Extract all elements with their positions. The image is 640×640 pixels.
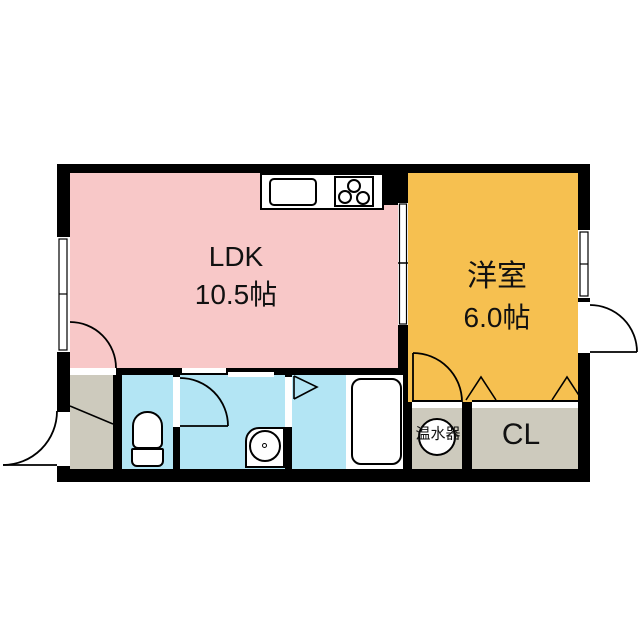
window-right [578, 230, 590, 298]
stove-burner-icon [338, 190, 352, 204]
entrance-doorway [57, 412, 70, 466]
closet-doorway [472, 400, 578, 408]
water-heater-doorway [412, 400, 462, 408]
western-room-label: 洋室 [467, 262, 527, 292]
ldk-size-label: 10.5帖 [195, 281, 278, 309]
entrance-area [70, 375, 113, 469]
stove-burner-icon [356, 191, 370, 205]
closet-label: CL [502, 420, 540, 450]
right-door-arc [590, 305, 637, 352]
washbasin-drain-icon [262, 443, 267, 448]
toilet-doorway [173, 377, 180, 427]
balcony-doorway-right [578, 302, 590, 353]
water-heater-label: 温水器 [415, 427, 460, 442]
toilet-tank-icon [131, 448, 164, 467]
western-size-label: 6.0帖 [464, 304, 531, 332]
bathroom [292, 375, 346, 469]
washroom-sliding-door-panel [228, 372, 274, 377]
bathtub-icon [351, 378, 402, 465]
entrance-door-arc [3, 411, 57, 465]
bathroom-doorway [285, 377, 292, 427]
kitchen-sink-icon [269, 178, 317, 206]
wall-kitchen-corner [384, 164, 408, 205]
toilet-bowl-icon [132, 411, 163, 449]
western-room-sliding-door [398, 203, 408, 325]
washroom-sliding-door-track [182, 368, 226, 373]
ldk-doorway [70, 368, 116, 375]
ldk-label: LDK [209, 243, 263, 271]
window-left [57, 237, 70, 352]
floor-plan: LDK 10.5帖 洋室 6.0帖 CL 温水器 [0, 0, 640, 640]
